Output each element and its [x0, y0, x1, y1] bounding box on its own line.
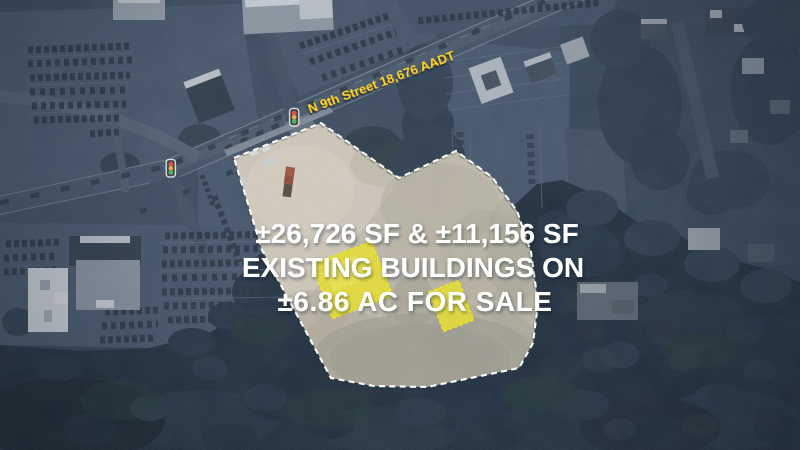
svg-text:EXISTING BUILDINGS ON: EXISTING BUILDINGS ON	[242, 252, 584, 283]
svg-text:±6.86 AC FOR SALE: ±6.86 AC FOR SALE	[278, 286, 553, 317]
svg-text:±26,726 SF & ±11,156 SF: ±26,726 SF & ±11,156 SF	[255, 218, 578, 249]
